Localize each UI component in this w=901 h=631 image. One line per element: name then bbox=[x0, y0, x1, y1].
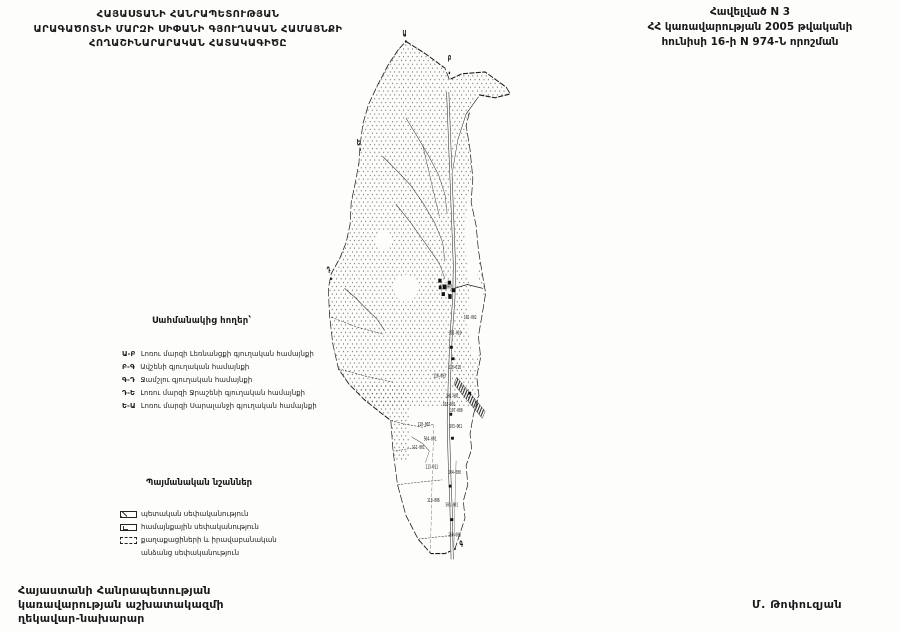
signatory-name: Մ. Թոփուզյան bbox=[752, 598, 842, 611]
legend-item-label: քաղաքացիների և իրավաբանական bbox=[141, 534, 277, 547]
parcel-label: 110-003 bbox=[433, 373, 446, 379]
conventional-signs-section: Պայմանական նշաններ պետական սեփականությու… bbox=[120, 478, 350, 560]
neighbor-name: Ավշենի գյուղական համայնքի bbox=[140, 363, 249, 371]
legend-item-private: քաղաքացիների և իրավաբանական bbox=[120, 534, 350, 547]
boundary-letter: Ա bbox=[403, 28, 407, 39]
parcel-label: 504-001 bbox=[424, 436, 437, 442]
cadastral-map: ԱԲԳԴԵ 631-001102-002103-010110-013110-00… bbox=[325, 25, 735, 590]
neighbor-name: Լոռու մարզի Ջրաշենի գյուղական համայնքի bbox=[140, 389, 305, 397]
parcel-label: 103-010 bbox=[449, 329, 462, 335]
conventional-signs-heading: Պայմանական նշաններ bbox=[146, 478, 350, 488]
legend-item-state: պետական սեփականություն bbox=[120, 508, 350, 521]
boundary-letter: Ե bbox=[357, 137, 361, 148]
parcel-label: 104-000 bbox=[448, 469, 461, 475]
parcel-label: 503-001 bbox=[449, 423, 462, 429]
parcel-label: 102-002 bbox=[464, 314, 477, 320]
boundary-letter: Դ bbox=[327, 264, 331, 275]
legend-item-label: պետական սեփականություն bbox=[141, 508, 248, 521]
parcel-label: 111-001 bbox=[412, 444, 425, 450]
legend-item-label: անձանց սեփականություն bbox=[141, 547, 239, 560]
boundary-letter: Բ bbox=[448, 53, 452, 64]
community-ownership-symbol bbox=[120, 524, 137, 531]
parcel-label: 101-001 bbox=[446, 393, 459, 399]
document-title-line2: ԱՐԱԳԱԾՈՏՆԻ ՄԱՐԶԻ ՍԻՓԱՆԻ ԳՅՈՒՂԱԿԱՆ ՀԱՄԱՅՆ… bbox=[8, 23, 368, 38]
parcel-label: 113-011 bbox=[425, 463, 438, 469]
signature-line3: ղեկավար-նախարար bbox=[18, 612, 224, 626]
neighbor-name: Լոռու մարզի Լեռնանցքի գյուղական համայնքի bbox=[141, 350, 314, 358]
annex-number: Հավելված N 3 bbox=[605, 5, 895, 20]
parcel-label: 110-007 bbox=[418, 421, 431, 427]
legend-item-label: համայնքային սեփականություն bbox=[141, 521, 259, 534]
parcel-label: 107-000 bbox=[450, 407, 463, 413]
legend-item-community: համայնքային սեփականություն bbox=[120, 521, 350, 534]
private-ownership-symbol bbox=[120, 537, 137, 544]
signature-line1: Հայաստանի Հանրապետության bbox=[18, 584, 224, 598]
segment-code: Գ-Դ bbox=[122, 376, 135, 384]
signature-block: Հայաստանի Հանրապետության կառավարության ա… bbox=[18, 584, 224, 626]
neighbor-name: Լոռու մարզի Սարալանջի գյուղական համայնքի bbox=[141, 402, 317, 410]
parcel-label: 113-006 bbox=[427, 497, 440, 503]
parcel-label: 501-001 bbox=[445, 502, 458, 508]
legend-item-private-continuation: անձանց սեփականություն bbox=[141, 547, 350, 560]
segment-code: Դ-Ե bbox=[122, 389, 135, 397]
parcel-label: 631-001 bbox=[440, 283, 453, 289]
state-ownership-symbol bbox=[120, 511, 137, 518]
stipple-texture bbox=[325, 25, 554, 461]
signature-line2: կառավարության աշխատակազմի bbox=[18, 598, 224, 612]
segment-code: Ա-Բ bbox=[122, 350, 136, 358]
segment-code: Բ-Գ bbox=[122, 363, 135, 371]
document-title: ՀԱՅԱՍՏԱՆԻ ՀԱՆՐԱՊԵՏՈՒԹՅԱՆ ԱՐԱԳԱԾՈՏՆԻ ՄԱՐԶ… bbox=[8, 8, 368, 52]
boundary-letter: Գ bbox=[459, 538, 463, 549]
neighbor-name: Ջամշլու գյուղական համայնքի bbox=[140, 376, 252, 384]
segment-code: Ե-Ա bbox=[122, 402, 136, 410]
document-title-line3: ՀՈՂԱՇԻՆԱՐԱՐԱԿԱՆ ՀԱՏԱԿԱԳԻԾԸ bbox=[8, 37, 368, 52]
document-title-line1: ՀԱՅԱՍՏԱՆԻ ՀԱՆՐԱՊԵՏՈՒԹՅԱՆ bbox=[8, 8, 368, 23]
parcel-label: 160-005 bbox=[448, 531, 461, 537]
parcel-label: 110-013 bbox=[448, 364, 461, 370]
